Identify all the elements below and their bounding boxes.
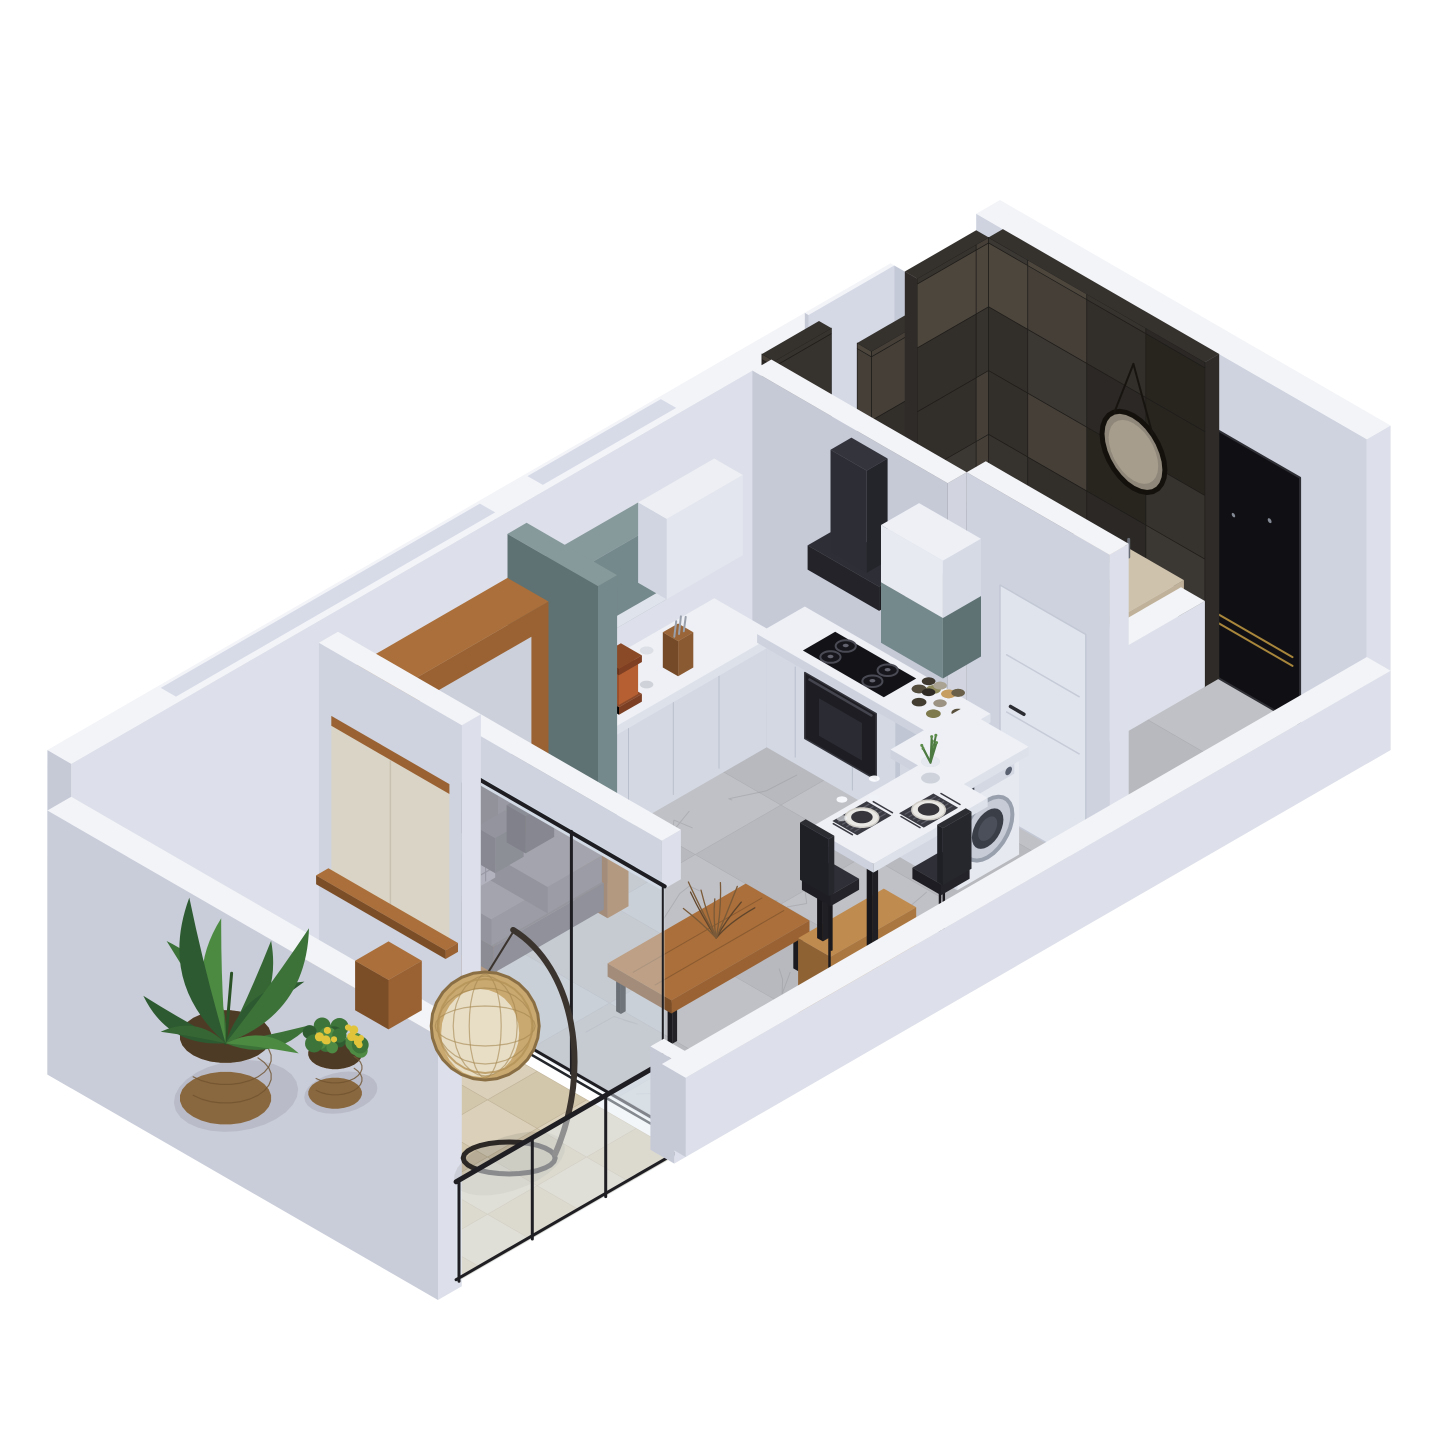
flower-bloom [324, 1038, 331, 1045]
apartment-3d-render [0, 0, 1440, 1440]
bath-wall-nw-b-tile [976, 243, 988, 314]
bath-wall-ne-se-face [1205, 354, 1219, 687]
kitchen-upper-corner-white-sw-face [638, 503, 667, 600]
bath-wall-shaft-side-tile [857, 349, 871, 421]
flower-bloom [345, 1024, 351, 1030]
wine-glass-1-top [837, 796, 848, 802]
herb-leaf [922, 747, 925, 750]
stool-a-back-se-face [829, 836, 835, 897]
bath-wall-nw-b-tile [976, 371, 988, 442]
hood-chimney-sw-face [831, 450, 867, 573]
herb-leaf [920, 744, 923, 747]
isometric-apartment-scene [0, 0, 1440, 1440]
glass-decanter-top [640, 647, 653, 655]
burner-cap-1 [870, 679, 876, 682]
food-2 [918, 803, 939, 815]
stool-b-back-sw-face [937, 825, 943, 886]
flower-bloom [331, 1036, 337, 1042]
bath-wall-nw-b-tile [976, 307, 988, 378]
spice-jar-6-top [922, 677, 935, 685]
flower-bloom [324, 1027, 331, 1034]
food-1 [851, 811, 872, 823]
spice-jar-4-top [933, 682, 946, 690]
flower-bloom [347, 1032, 356, 1041]
herb-leaf [930, 735, 933, 738]
herb-sprig [931, 737, 932, 763]
flower-bloom [315, 1032, 324, 1041]
wine-glass-2-top [869, 776, 880, 782]
herb-leaf [934, 734, 937, 737]
wall-se-cut-sw-face [662, 1064, 686, 1157]
